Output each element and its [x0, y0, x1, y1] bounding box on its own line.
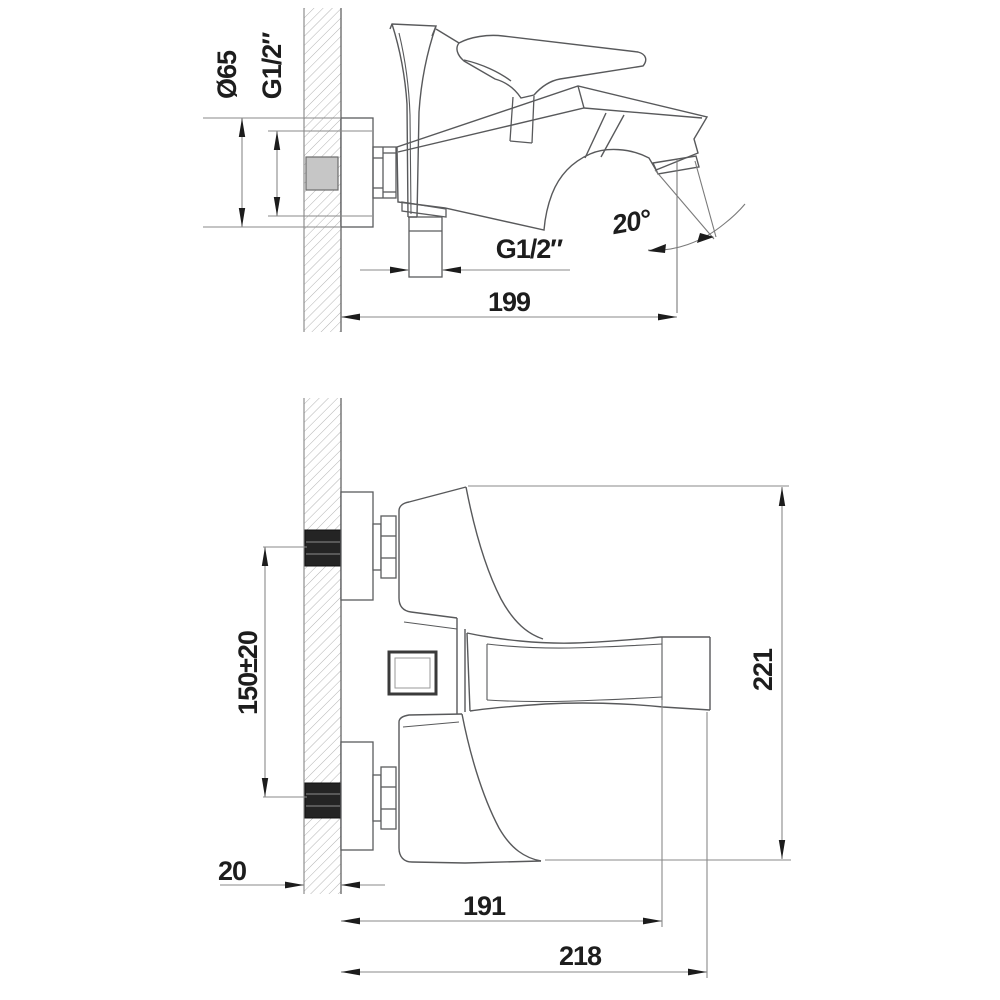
wall-pipe-connection	[306, 157, 338, 190]
handle-front-fin	[390, 24, 436, 217]
label-outlet-thread: G1/2″	[496, 234, 564, 264]
upper-body-edge	[399, 487, 466, 598]
mounting-flange-top	[341, 118, 373, 227]
label-spout-angle: 20°	[609, 204, 654, 240]
wall-section-bottom	[304, 398, 341, 894]
spout-aerator	[653, 156, 699, 174]
bottom-view: 150±20 221 20 191 218	[218, 398, 791, 978]
lower-body-edge	[399, 714, 462, 848]
connection-nut-upper	[373, 516, 396, 578]
mounting-flange-upper	[341, 492, 373, 600]
angle-arc	[648, 204, 745, 250]
handle-front	[467, 633, 710, 711]
supply-fitting-upper	[305, 530, 341, 566]
label-wall-thickness-20: 20	[218, 856, 246, 886]
handle-column	[510, 96, 534, 143]
top-view: Ø65 G1/2″ G1/2″ 20° 199	[203, 8, 745, 332]
label-height-221: 221	[748, 648, 778, 691]
label-flange-diameter: Ø65	[212, 50, 242, 99]
label-reach-218: 218	[559, 941, 602, 971]
label-wall-thread: G1/2″	[257, 32, 287, 100]
label-centers-150: 150±20	[233, 631, 263, 715]
spout-stream	[648, 160, 745, 313]
diverter-knob	[389, 652, 436, 694]
supply-fitting-lower	[305, 783, 341, 818]
label-reach-191: 191	[463, 891, 506, 921]
mounting-flange-lower	[341, 742, 373, 850]
faucet-installation-diagram: Ø65 G1/2″ G1/2″ 20° 199	[0, 0, 1000, 1000]
angle-arc-arrows	[648, 233, 714, 253]
wall-mount-connector-top	[341, 118, 396, 227]
technical-drawing-sheet: Ø65 G1/2″ G1/2″ 20° 199	[0, 0, 1000, 1000]
wall-section-top	[304, 8, 341, 332]
handle-lever-side	[436, 29, 646, 98]
connection-nut-lower	[373, 767, 396, 829]
label-length-199: 199	[488, 287, 531, 317]
